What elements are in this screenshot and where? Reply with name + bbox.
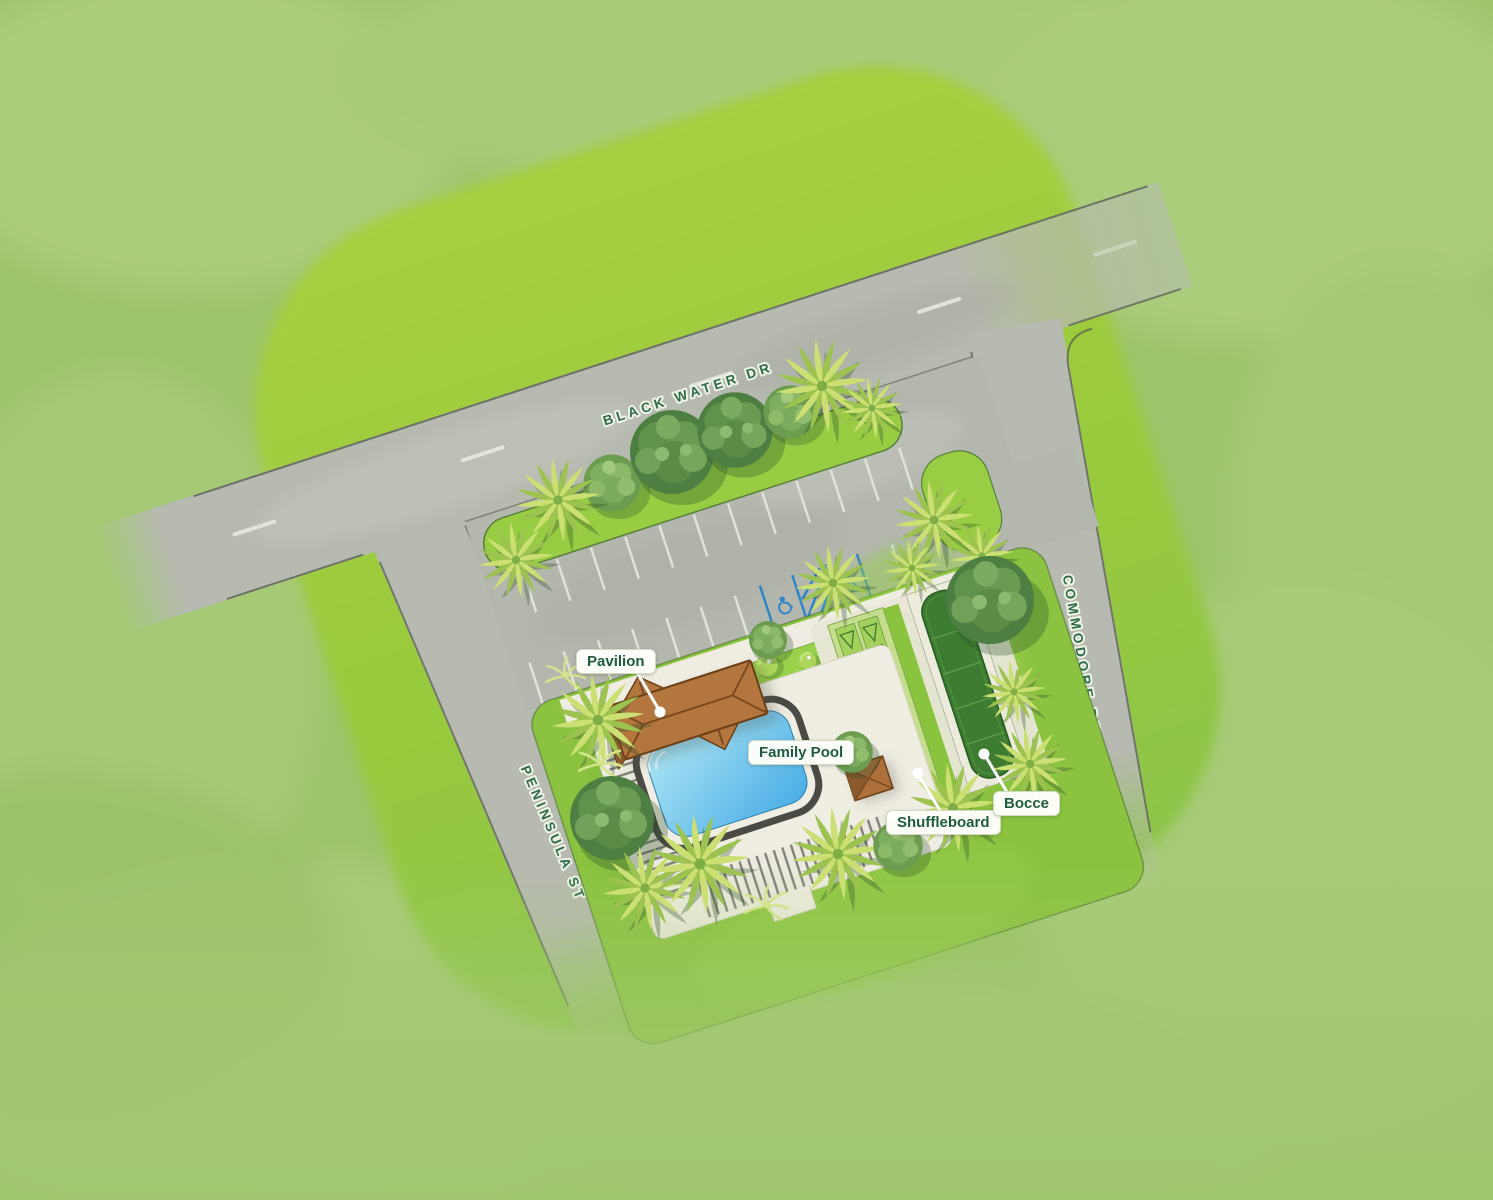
south-fade-wash xyxy=(0,0,1493,1200)
amenity-site-plan-map: BLACK WATER DR PENINSULA ST COMMODORE DR xyxy=(0,0,1493,1200)
pavilion-label[interactable]: Pavilion xyxy=(576,649,656,674)
bocce-label[interactable]: Bocce xyxy=(993,791,1060,816)
shuffleboard-label[interactable]: Shuffleboard xyxy=(886,810,1001,835)
family-pool-label[interactable]: Family Pool xyxy=(748,740,854,765)
site-plan-canvas: BLACK WATER DR PENINSULA ST COMMODORE DR xyxy=(0,0,1493,1200)
